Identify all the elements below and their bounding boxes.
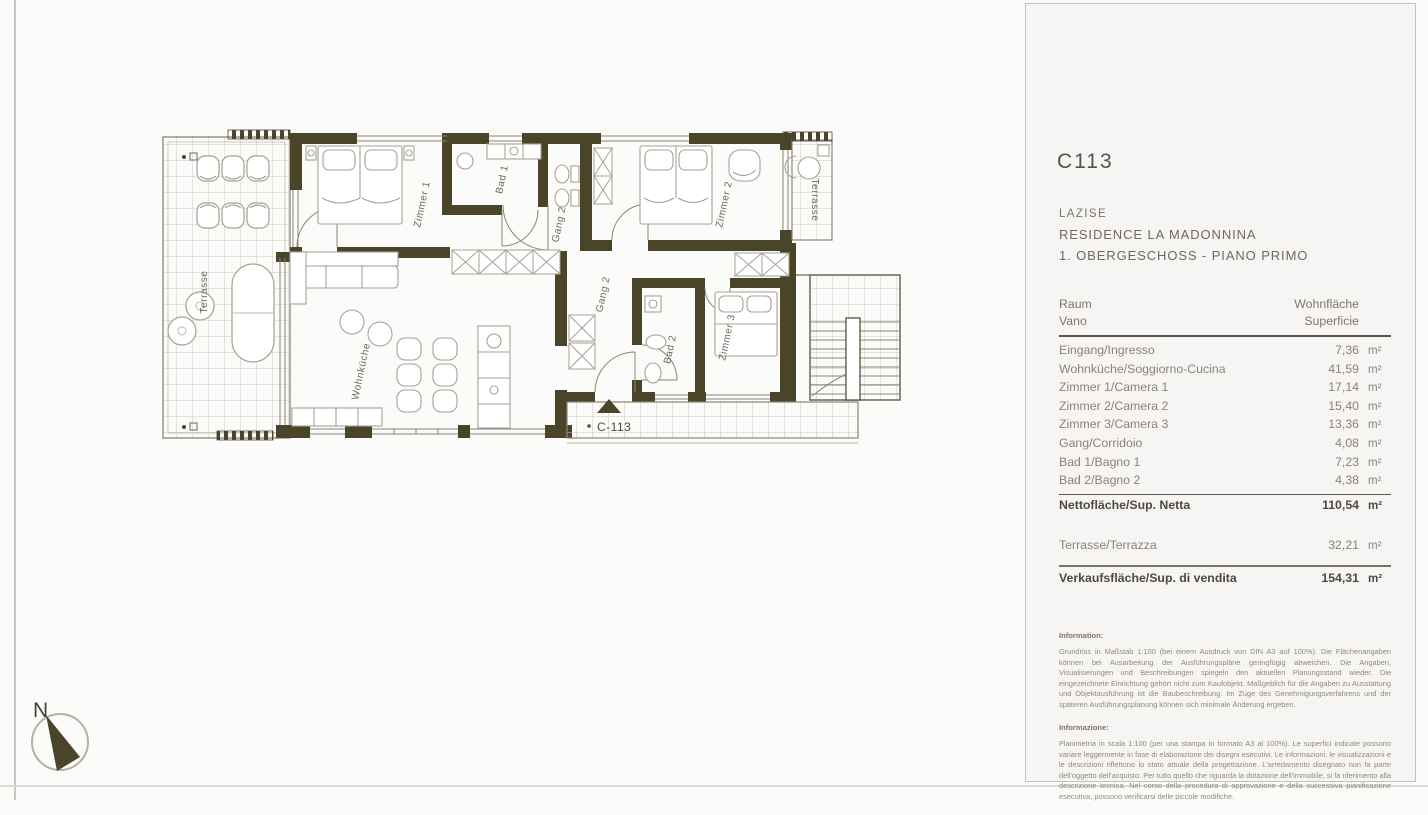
row-unit: m² (1359, 364, 1391, 376)
compass: N (32, 699, 88, 771)
table-row: Bad 2/Bagno 2 4,38 m² (1059, 473, 1391, 492)
row-unit: m² (1359, 457, 1391, 469)
row-unit: m² (1359, 345, 1391, 357)
location: LAZISE (1059, 208, 1107, 220)
area-table: Raum Vano Wohnfläche Superficie Eingang/… (1059, 296, 1391, 592)
label-north: N (33, 699, 48, 722)
row-value: 7,23 (1297, 455, 1359, 469)
row-unit: m² (1359, 438, 1391, 450)
total-unit: m² (1359, 573, 1391, 585)
total-value: 154,31 (1297, 571, 1359, 585)
label-bad1: Bad 1 (494, 164, 511, 195)
row-label: Bad 1/Bagno 1 (1059, 455, 1297, 469)
terrace-unit: m² (1359, 540, 1391, 552)
floor-plan-area: Terrasse (0, 0, 1020, 800)
row-label: Wohnküche/Soggiorno-Cucina (1059, 362, 1297, 376)
row-unit: m² (1359, 419, 1391, 431)
row-label: Zimmer 3/Camera 3 (1059, 417, 1297, 431)
row-unit: m² (1359, 475, 1391, 487)
row-value: 4,08 (1297, 436, 1359, 450)
room-zimmer2: Zimmer 2 (640, 146, 760, 229)
floor-name: 1. OBERGESCHOSS - PIANO PRIMO (1059, 248, 1308, 263)
row-value: 15,40 (1297, 399, 1359, 413)
net-unit: m² (1359, 500, 1391, 512)
label-gang2-upper: Gang 2 (550, 206, 568, 244)
room-bad1: Bad 1 (457, 144, 579, 207)
net-label: Nettofläche/Sup. Netta (1059, 498, 1297, 512)
header-area-de: Wohnfläche (1294, 296, 1359, 313)
row-label: Zimmer 2/Camera 2 (1059, 399, 1297, 413)
label-terrace-left: Terrasse (199, 270, 210, 313)
net-area-row: Nettofläche/Sup. Netta 110,54 m² (1059, 494, 1391, 519)
info-text-de: Grundriss in Maßstab 1:100 (bei einem Au… (1059, 647, 1391, 710)
terrace-value: 32,21 (1297, 538, 1359, 552)
row-label: Gang/Corridoio (1059, 436, 1297, 450)
header-room-it: Vano (1059, 313, 1092, 330)
row-value: 4,38 (1297, 473, 1359, 487)
label-terrace-right: Terrasse (809, 178, 820, 221)
row-label: Bad 2/Bagno 2 (1059, 473, 1297, 487)
table-row: Gang/Corridoio 4,08 m² (1059, 436, 1391, 455)
room-zimmer1: Zimmer 1 (306, 146, 433, 229)
label-zimmer1: Zimmer 1 (412, 180, 433, 228)
label-zimmer2: Zimmer 2 (714, 180, 735, 228)
label-unit-marker: C-113 (597, 420, 631, 434)
row-label: Eingang/Ingresso (1059, 343, 1297, 357)
staircase (796, 275, 900, 400)
label-gang2-lower: Gang 2 (594, 276, 612, 314)
table-row: Bad 1/Bagno 1 7,23 m² (1059, 455, 1391, 474)
legal-info: Information: Grundriss in Maßstab 1:100 … (1059, 631, 1391, 815)
room-bad2: Bad 2 (645, 296, 679, 383)
row-label: Zimmer 1/Camera 1 (1059, 380, 1297, 394)
floor-plan: Terrasse (0, 0, 1020, 800)
info-panel: C113 LAZISE RESIDENCE LA MADONNINA 1. OB… (1025, 3, 1416, 782)
header-room-de: Raum (1059, 296, 1092, 313)
total-area-row: Verkaufsfläche/Sup. di vendita 154,31 m² (1059, 565, 1391, 592)
table-row: Eingang/Ingresso 7,36 m² (1059, 343, 1391, 362)
info-text-it: Planimetria in scala 1:100 (per una stam… (1059, 739, 1391, 802)
compass-needle-icon (46, 715, 80, 771)
residence-name: RESIDENCE LA MADONNINA (1059, 227, 1257, 242)
row-value: 7,36 (1297, 343, 1359, 357)
info-title-de: Information: (1059, 631, 1391, 640)
room-zimmer3: Zimmer 3 (715, 292, 777, 362)
terrace-label: Terrasse/Terrazza (1059, 538, 1297, 552)
header-area-it: Superficie (1294, 313, 1359, 330)
table-row: Wohnküche/Soggiorno-Cucina 41,59 m² (1059, 362, 1391, 381)
info-title-it: Informazione: (1059, 723, 1391, 732)
row-unit: m² (1359, 401, 1391, 413)
table-row: Zimmer 1/Camera 1 17,14 m² (1059, 380, 1391, 399)
table-row: Zimmer 3/Camera 3 13,36 m² (1059, 417, 1391, 436)
label-wohnkueche: Wohnküche (350, 342, 373, 401)
table-body: Eingang/Ingresso 7,36 m² Wohnküche/Soggi… (1059, 337, 1391, 492)
table-header: Raum Vano Wohnfläche Superficie (1059, 296, 1391, 337)
row-value: 13,36 (1297, 417, 1359, 431)
total-label: Verkaufsfläche/Sup. di vendita (1059, 571, 1297, 585)
net-value: 110,54 (1297, 498, 1359, 512)
row-value: 17,14 (1297, 380, 1359, 394)
terrace-left: Terrasse (163, 130, 290, 440)
terrace-row: Terrasse/Terrazza 32,21 m² (1059, 538, 1391, 557)
table-row: Zimmer 2/Camera 2 15,40 m² (1059, 399, 1391, 418)
terrace-bottom: C-113 (567, 399, 858, 443)
unit-code: C113 (1057, 150, 1114, 174)
room-wohnkueche: Wohnküche (290, 252, 510, 428)
row-unit: m² (1359, 382, 1391, 394)
row-value: 41,59 (1297, 362, 1359, 376)
